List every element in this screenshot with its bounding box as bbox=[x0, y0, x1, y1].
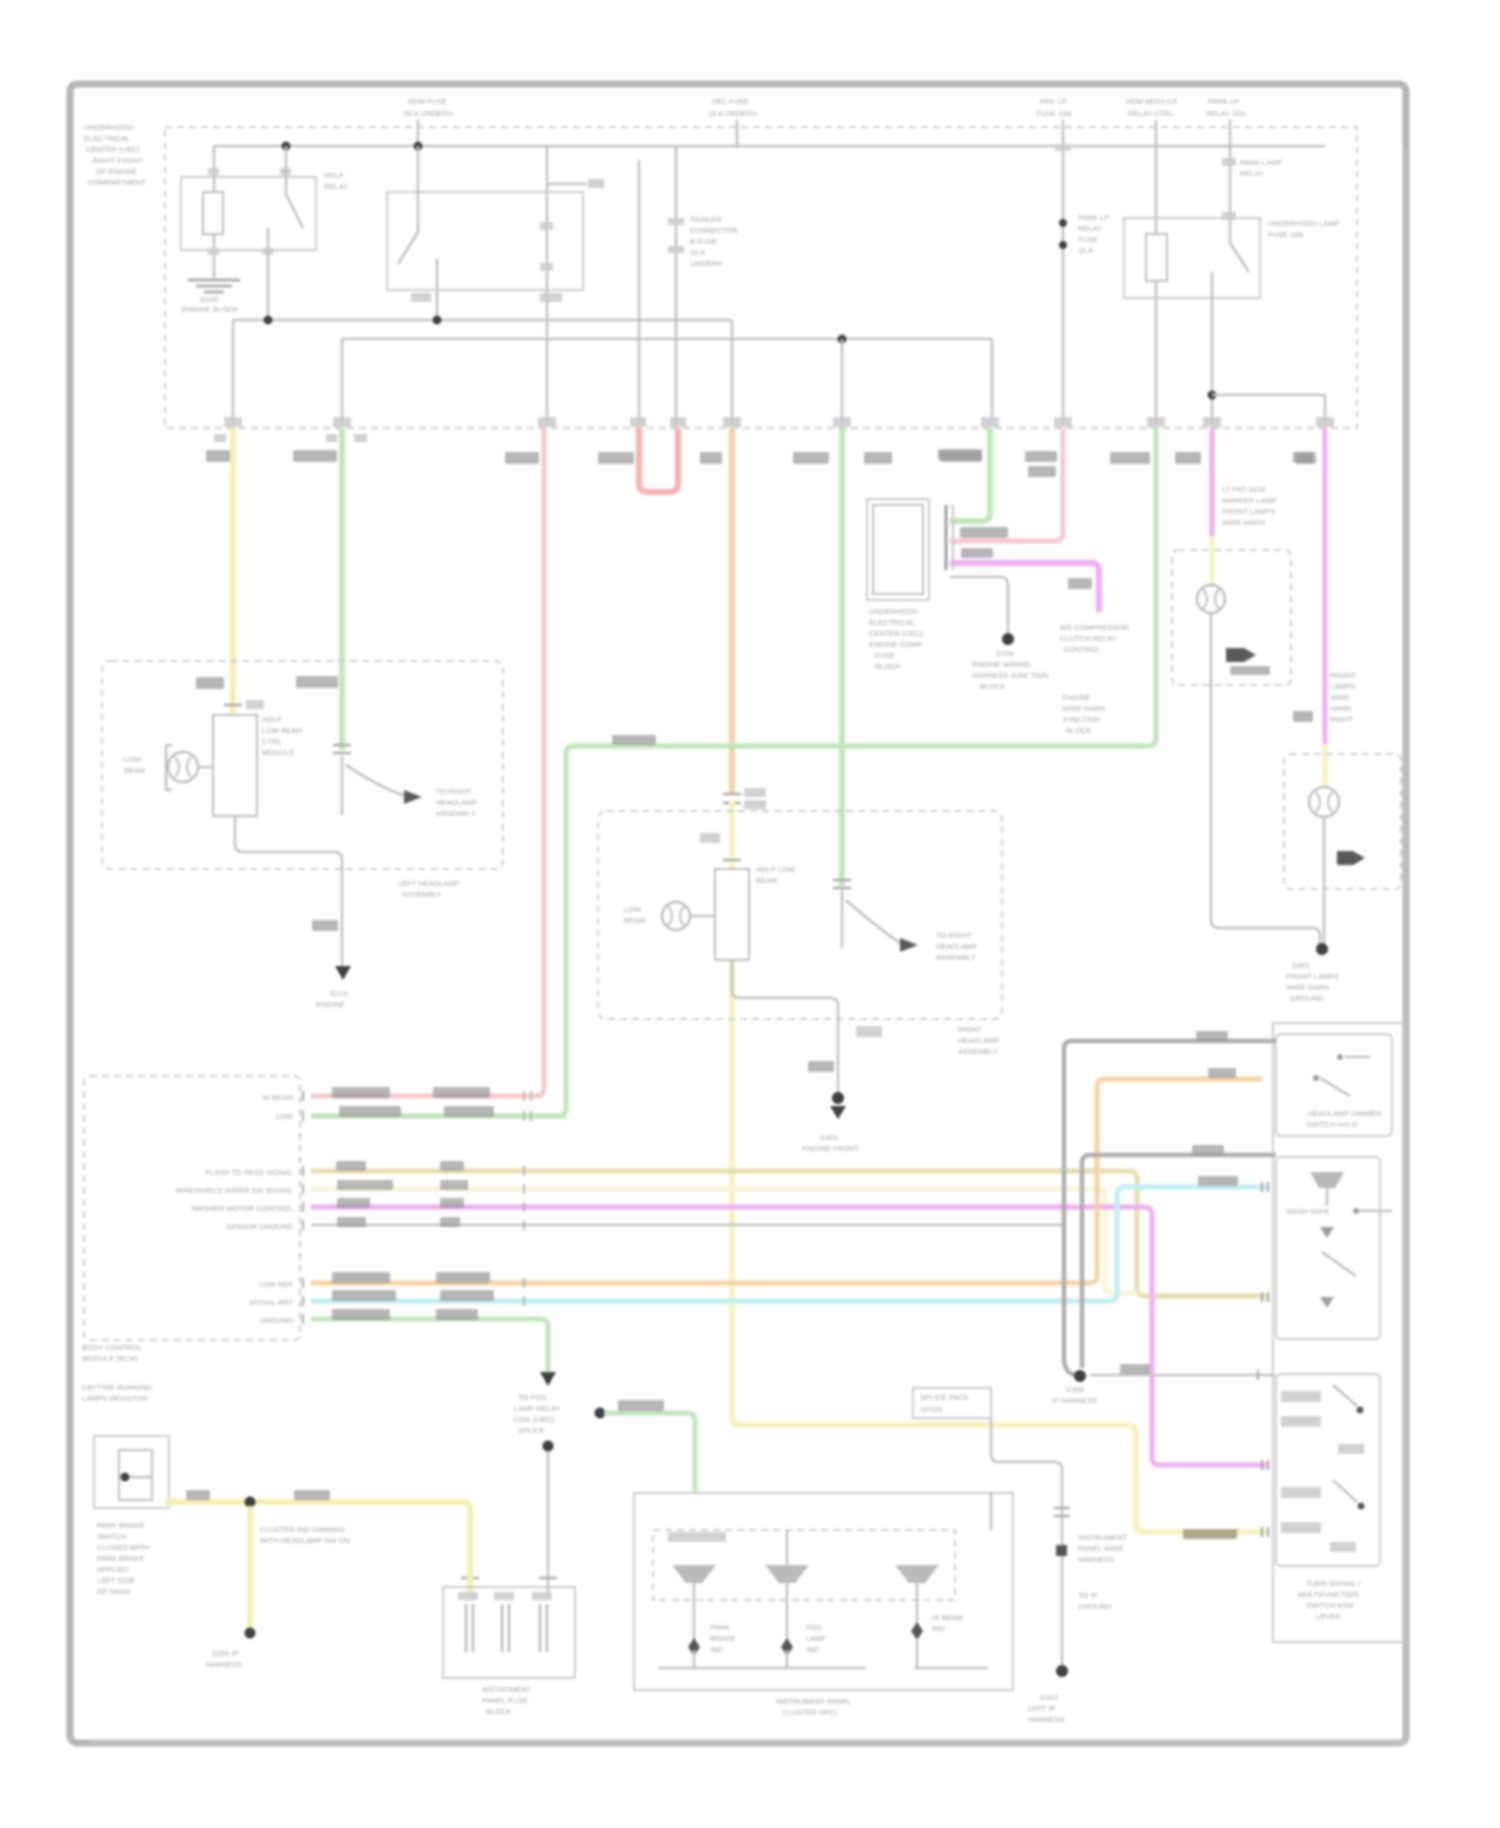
svg-text:TO FOG: TO FOG bbox=[518, 1393, 547, 1402]
svg-text:LOW: LOW bbox=[276, 1112, 294, 1121]
svg-text:FLASH TO PASS SIGNAL: FLASH TO PASS SIGNAL bbox=[205, 1168, 293, 1177]
svg-text:RELAY: RELAY bbox=[1078, 224, 1102, 233]
svg-text:ASSEMBLY: ASSEMBLY bbox=[958, 1047, 998, 1056]
svg-text:LOW BEAM: LOW BEAM bbox=[262, 726, 302, 735]
svg-text:HARNESS: HARNESS bbox=[1028, 1715, 1064, 1724]
svg-text:FUSE 10A: FUSE 10A bbox=[1268, 230, 1303, 239]
svg-text:FOG: FOG bbox=[806, 1623, 822, 1632]
svg-text:UNDERHOOD LAMP: UNDERHOOD LAMP bbox=[1268, 219, 1340, 228]
svg-text:UNDERHOOD: UNDERHOOD bbox=[84, 123, 134, 132]
svg-text:CENTER (UEC): CENTER (UEC) bbox=[86, 145, 140, 154]
svg-text:TURN SIGNAL /: TURN SIGNAL / bbox=[1306, 1579, 1361, 1588]
svg-text:HARNESS: HARNESS bbox=[206, 1660, 242, 1669]
svg-text:SPLICE: SPLICE bbox=[518, 1426, 545, 1435]
svg-text:G100: G100 bbox=[200, 295, 218, 304]
svg-text:S100: S100 bbox=[996, 649, 1014, 658]
svg-text:PANEL FUSE: PANEL FUSE bbox=[482, 1696, 528, 1705]
svg-text:CONNECTOR: CONNECTOR bbox=[690, 226, 739, 235]
svg-text:RIGHT FRONT: RIGHT FRONT bbox=[92, 156, 144, 165]
svg-text:HEADLAMP: HEADLAMP bbox=[436, 798, 477, 807]
svg-text:BLOCK: BLOCK bbox=[875, 662, 900, 671]
svg-text:INSTRUMENT: INSTRUMENT bbox=[1078, 1533, 1128, 1542]
svg-text:GROUND: GROUND bbox=[1290, 994, 1324, 1003]
svg-text:IND: IND bbox=[710, 1645, 724, 1654]
svg-text:SP205: SP205 bbox=[920, 1405, 943, 1414]
svg-text:BLOCK: BLOCK bbox=[486, 1707, 511, 1716]
svg-text:HDLP LOW: HDLP LOW bbox=[756, 865, 796, 874]
svg-text:LEFT IP: LEFT IP bbox=[1028, 1704, 1055, 1713]
svg-text:FRONT LAMPS: FRONT LAMPS bbox=[1222, 507, 1275, 516]
svg-text:SIGNAL REF: SIGNAL REF bbox=[249, 1298, 294, 1307]
svg-text:BLOCK: BLOCK bbox=[980, 682, 1005, 691]
svg-text:RIGHT: RIGHT bbox=[1330, 715, 1354, 724]
svg-text:ENGINE: ENGINE bbox=[316, 1000, 345, 1009]
svg-text:ENGINE FRONT: ENGINE FRONT bbox=[802, 1144, 859, 1153]
svg-text:LAMP: LAMP bbox=[806, 1634, 826, 1643]
svg-text:A/C COMPRESSOR: A/C COMPRESSOR bbox=[1060, 623, 1129, 632]
svg-text:20 A: 20 A bbox=[1078, 246, 1093, 255]
svg-text:ENGINE COMP: ENGINE COMP bbox=[869, 640, 922, 649]
svg-text:INSTRUMENT PANEL: INSTRUMENT PANEL bbox=[776, 1697, 851, 1706]
svg-text:PARK LAMP: PARK LAMP bbox=[1240, 158, 1282, 167]
svg-text:FUSE: FUSE bbox=[1078, 235, 1098, 244]
svg-text:BRAKE: BRAKE bbox=[710, 1634, 735, 1643]
svg-text:CLUSTER IND DIMMING: CLUSTER IND DIMMING bbox=[260, 1525, 346, 1534]
svg-text:CTRL: CTRL bbox=[262, 737, 282, 746]
svg-text:BLOCK: BLOCK bbox=[1066, 726, 1091, 735]
svg-text:JUNCTION: JUNCTION bbox=[1062, 715, 1100, 724]
svg-text:50 A UNDERH: 50 A UNDERH bbox=[404, 109, 453, 118]
svg-text:HEADLAMP: HEADLAMP bbox=[958, 1036, 999, 1045]
svg-text:HDM FUSE: HDM FUSE bbox=[408, 97, 447, 106]
svg-text:LOW: LOW bbox=[624, 905, 642, 914]
svg-text:CENTER (UEC): CENTER (UEC) bbox=[869, 629, 923, 638]
svg-text:PARK BRAKE: PARK BRAKE bbox=[97, 1554, 144, 1563]
svg-text:WIRE HARN: WIRE HARN bbox=[1062, 704, 1105, 713]
svg-text:CLOSED WITH: CLOSED WITH bbox=[97, 1543, 149, 1552]
svg-text:TO RIGHT: TO RIGHT bbox=[936, 931, 972, 940]
svg-text:ENGINE BLOCK: ENGINE BLOCK bbox=[182, 305, 238, 314]
svg-text:LEFT SIDE: LEFT SIDE bbox=[97, 1576, 135, 1585]
svg-text:TO IP: TO IP bbox=[1078, 1591, 1097, 1600]
svg-text:WINDSHIELD WIPER SW SIGNAL: WINDSHIELD WIPER SW SIGNAL bbox=[175, 1186, 293, 1195]
svg-text:RELAY CTRL: RELAY CTRL bbox=[1128, 109, 1174, 118]
svg-text:OF ENGINE: OF ENGINE bbox=[96, 167, 137, 176]
svg-text:SENSOR GROUND: SENSOR GROUND bbox=[226, 1222, 294, 1231]
svg-text:WIRE HARN: WIRE HARN bbox=[1222, 518, 1265, 527]
svg-text:WITH HEADLAMP SW ON: WITH HEADLAMP SW ON bbox=[260, 1536, 350, 1545]
svg-text:HDLP: HDLP bbox=[262, 715, 282, 724]
svg-text:MARKER LAMP: MARKER LAMP bbox=[1222, 496, 1277, 505]
svg-text:SPLICE PACK: SPLICE PACK bbox=[920, 1393, 969, 1402]
svg-text:APPLIED: APPLIED bbox=[97, 1565, 129, 1574]
svg-text:FRONT: FRONT bbox=[1330, 671, 1356, 680]
svg-text:G303: G303 bbox=[1040, 1693, 1058, 1702]
svg-text:RELAY 20A: RELAY 20A bbox=[1206, 109, 1245, 118]
svg-text:BEAM: BEAM bbox=[756, 876, 777, 885]
svg-text:10 A: 10 A bbox=[690, 248, 705, 257]
svg-text:WIRE HARN: WIRE HARN bbox=[1286, 983, 1329, 992]
svg-text:COMPARTMENT: COMPARTMENT bbox=[88, 178, 146, 187]
svg-text:LAMPS: LAMPS bbox=[1330, 682, 1355, 691]
svg-text:SWITCH ASM: SWITCH ASM bbox=[1306, 1601, 1354, 1610]
svg-text:LT FRT SIDE: LT FRT SIDE bbox=[1222, 485, 1266, 494]
svg-text:G401: G401 bbox=[820, 1133, 838, 1142]
svg-text:PARK BRAKE: PARK BRAKE bbox=[97, 1521, 144, 1530]
svg-text:G110: G110 bbox=[330, 989, 348, 998]
svg-text:SWITCH HI/LO: SWITCH HI/LO bbox=[1306, 1120, 1357, 1129]
svg-text:PARK: PARK bbox=[710, 1623, 730, 1632]
svg-text:PANEL WIRE: PANEL WIRE bbox=[1078, 1544, 1123, 1553]
svg-text:RELAY: RELAY bbox=[1240, 169, 1264, 178]
svg-text:LOW: LOW bbox=[124, 755, 142, 764]
svg-text:FUSE: FUSE bbox=[875, 651, 895, 660]
svg-text:MODULE: MODULE bbox=[262, 748, 294, 757]
svg-text:PARK LP: PARK LP bbox=[1078, 213, 1109, 222]
svg-text:HEADLAMP DIMMER: HEADLAMP DIMMER bbox=[1308, 1109, 1382, 1118]
svg-text:FUSE 15A: FUSE 15A bbox=[1036, 109, 1071, 118]
svg-text:ENGINE WIRING: ENGINE WIRING bbox=[972, 660, 1031, 669]
svg-text:TRAILER: TRAILER bbox=[690, 215, 722, 224]
svg-text:LEVER: LEVER bbox=[1316, 1612, 1341, 1621]
svg-text:HDLP: HDLP bbox=[324, 171, 344, 180]
svg-text:ASSEMBLY: ASSEMBLY bbox=[402, 890, 442, 899]
svg-text:ELECTRICAL: ELECTRICAL bbox=[869, 618, 915, 627]
svg-text:ELECTRICAL: ELECTRICAL bbox=[84, 134, 130, 143]
svg-text:UNDERH: UNDERH bbox=[690, 259, 722, 268]
svg-text:LEFT HEADLAMP: LEFT HEADLAMP bbox=[398, 879, 460, 888]
svg-text:ENGINE: ENGINE bbox=[1062, 693, 1091, 702]
svg-text:BEAM: BEAM bbox=[124, 766, 145, 775]
svg-text:GROUND: GROUND bbox=[260, 1316, 294, 1325]
svg-text:IND: IND bbox=[806, 1645, 820, 1654]
svg-text:BODY CONTROL: BODY CONTROL bbox=[82, 1343, 142, 1352]
svg-text:HARNESS: HARNESS bbox=[1078, 1555, 1114, 1564]
svg-text:HARN: HARN bbox=[1330, 704, 1351, 713]
svg-text:ASSEMBLY: ASSEMBLY bbox=[936, 953, 976, 962]
svg-text:GROUND: GROUND bbox=[1078, 1602, 1112, 1611]
svg-text:CLUSTER (IPC): CLUSTER (IPC) bbox=[782, 1708, 837, 1717]
svg-text:ASSEMBLY: ASSEMBLY bbox=[436, 809, 476, 818]
svg-text:S206 IP: S206 IP bbox=[212, 1649, 239, 1658]
svg-text:DRL FUSE: DRL FUSE bbox=[712, 97, 749, 106]
svg-text:G306: G306 bbox=[1066, 1385, 1084, 1394]
svg-text:HI BEAM: HI BEAM bbox=[262, 1093, 293, 1102]
svg-text:PARK LP: PARK LP bbox=[1208, 97, 1239, 106]
svg-text:UNDERHOOD: UNDERHOOD bbox=[869, 607, 919, 616]
svg-text:IND: IND bbox=[932, 1624, 946, 1633]
svg-text:LAMP RELAY: LAMP RELAY bbox=[514, 1404, 560, 1413]
svg-text:CLUTCH RELAY: CLUTCH RELAY bbox=[1060, 634, 1117, 643]
svg-text:TO RIGHT: TO RIGHT bbox=[436, 787, 472, 796]
svg-text:SWITCH: SWITCH bbox=[97, 1532, 127, 1541]
svg-text:OF DASH: OF DASH bbox=[97, 1587, 130, 1596]
svg-text:MODULE (BCM): MODULE (BCM) bbox=[82, 1354, 138, 1363]
svg-text:PRK LP: PRK LP bbox=[1040, 97, 1067, 106]
svg-text:15 A UNDERH: 15 A UNDERH bbox=[708, 109, 757, 118]
svg-text:FRONT LAMPS: FRONT LAMPS bbox=[1286, 972, 1339, 981]
svg-text:INSTRUMENT: INSTRUMENT bbox=[482, 1685, 532, 1694]
svg-text:HDM MODULE: HDM MODULE bbox=[1126, 97, 1177, 106]
svg-text:WASHER MOTOR CONTROL: WASHER MOTOR CONTROL bbox=[192, 1204, 293, 1213]
svg-text:WASH WIPE: WASH WIPE bbox=[1286, 1207, 1329, 1216]
svg-text:HARNESS JUNCTION: HARNESS JUNCTION bbox=[972, 671, 1048, 680]
svg-text:HI BEAM: HI BEAM bbox=[932, 1613, 963, 1622]
svg-text:HEADLAMP: HEADLAMP bbox=[936, 942, 977, 951]
svg-text:RIGHT: RIGHT bbox=[958, 1025, 982, 1034]
svg-text:LAMPS RESISTOR: LAMPS RESISTOR bbox=[82, 1394, 148, 1403]
svg-text:RELAY: RELAY bbox=[324, 182, 348, 191]
svg-text:G401: G401 bbox=[1292, 961, 1310, 970]
svg-text:DAYTIME RUNNING: DAYTIME RUNNING bbox=[82, 1383, 152, 1392]
svg-text:B FUSE: B FUSE bbox=[690, 237, 717, 246]
svg-text:WIRE: WIRE bbox=[1330, 693, 1350, 702]
svg-text:CONTROL: CONTROL bbox=[1064, 645, 1101, 654]
svg-text:IP HARNESS: IP HARNESS bbox=[1052, 1396, 1097, 1405]
svg-text:BEAM: BEAM bbox=[624, 916, 645, 925]
svg-text:MULTIFUNCTION: MULTIFUNCTION bbox=[1298, 1590, 1359, 1599]
svg-text:COIL (UEC): COIL (UEC) bbox=[514, 1415, 555, 1424]
svg-text:LOW REF: LOW REF bbox=[259, 1280, 294, 1289]
